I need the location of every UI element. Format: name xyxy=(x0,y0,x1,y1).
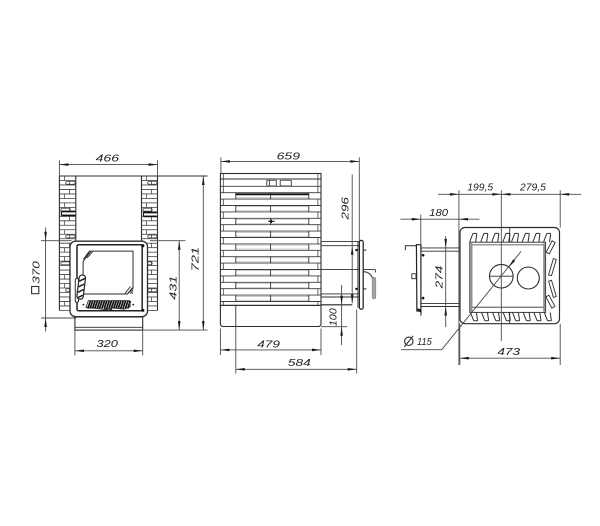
svg-text:180: 180 xyxy=(429,208,448,219)
svg-text:296: 296 xyxy=(339,197,351,221)
svg-text:659: 659 xyxy=(277,150,301,162)
svg-text:584: 584 xyxy=(288,357,311,369)
svg-text:274: 274 xyxy=(433,265,445,289)
svg-text:431: 431 xyxy=(167,276,178,300)
svg-text:479: 479 xyxy=(257,338,280,350)
svg-text:100: 100 xyxy=(329,308,340,326)
svg-text:721: 721 xyxy=(190,247,201,271)
svg-text:473: 473 xyxy=(497,346,520,358)
svg-text:115: 115 xyxy=(417,337,432,348)
svg-text:199,5: 199,5 xyxy=(467,182,493,193)
svg-text:279,5: 279,5 xyxy=(519,182,546,193)
svg-text:370: 370 xyxy=(30,261,42,284)
svg-text:320: 320 xyxy=(96,338,118,349)
svg-text:466: 466 xyxy=(96,152,120,164)
